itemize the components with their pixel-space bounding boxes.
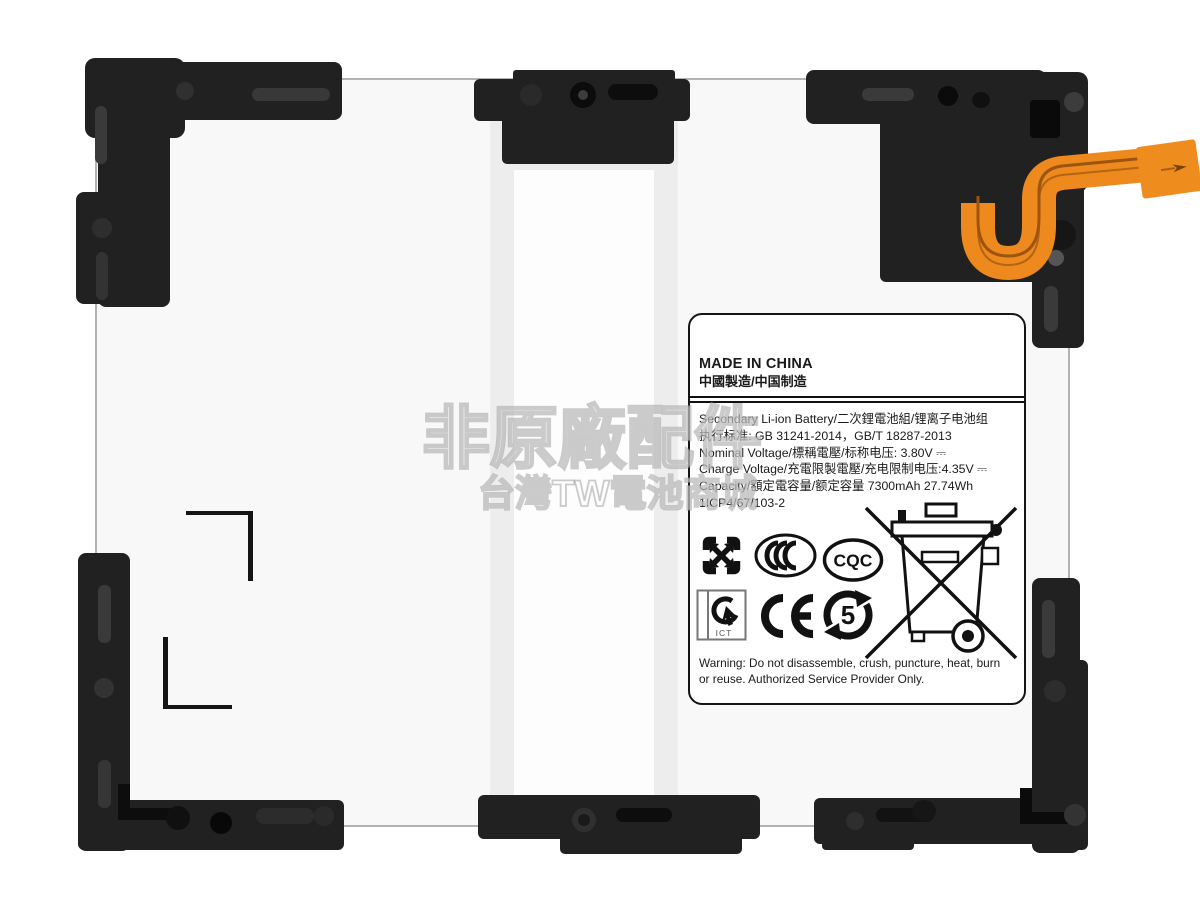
ict-recycling-icon: ICT xyxy=(696,589,747,641)
ce-mark-icon xyxy=(756,593,816,639)
corner-mark-top xyxy=(186,511,253,581)
made-in-text: MADE IN CHINA xyxy=(699,356,813,373)
taiwan-recycling-icon xyxy=(698,532,745,579)
flex-cable xyxy=(935,125,1200,305)
corner-mark-bottom xyxy=(163,637,232,709)
ict-text: ICT xyxy=(716,628,733,638)
rohs-year-text: 5 xyxy=(841,600,855,630)
flex-connector-tip xyxy=(1136,139,1200,199)
watermark-line2: 台灣TW電池商城 xyxy=(478,463,758,517)
battery-product-photo: MADE IN CHINA 中國製造/中国制造 Secondary Li-ion… xyxy=(0,0,1200,900)
ccc-certification-icon xyxy=(754,533,817,578)
warning-text: Warning: Do not disassemble, crush, punc… xyxy=(699,656,1001,687)
weee-crossed-bin-icon xyxy=(864,500,1020,664)
